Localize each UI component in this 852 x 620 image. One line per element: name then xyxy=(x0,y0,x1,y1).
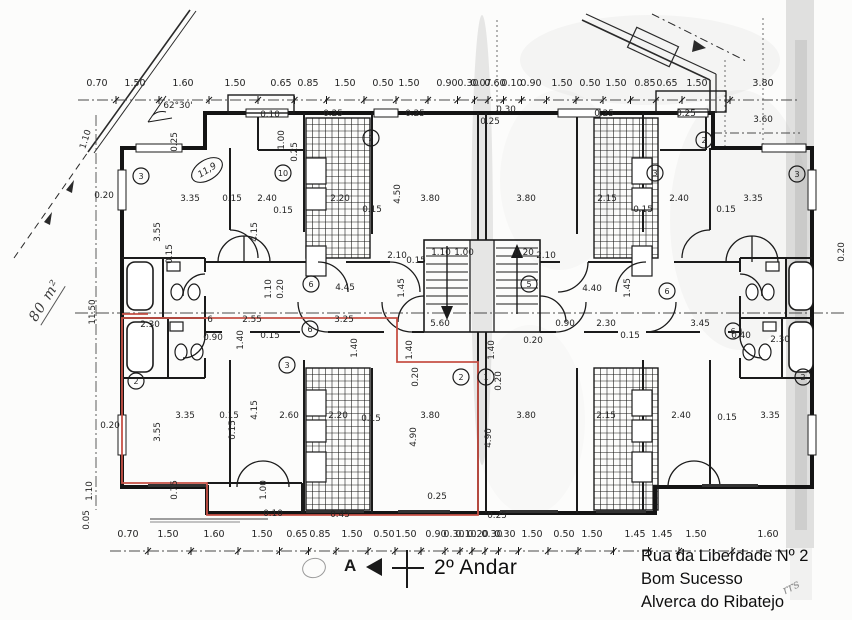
door-arc xyxy=(398,296,424,322)
dim-label: 2.40 xyxy=(257,194,277,204)
dim-label: 2.15 xyxy=(596,411,616,421)
dim-label: 3.45 xyxy=(690,319,710,329)
dim-label: 3.35 xyxy=(180,194,200,204)
dim-label: 0.20 xyxy=(523,336,543,346)
dim-label: 1.45 xyxy=(397,278,407,298)
floorplan-canvas: 0.701.501.601.500.650.851.500.501.500.90… xyxy=(0,0,852,620)
dim-label: 0.15 xyxy=(633,205,653,215)
dim-label: 3.80 xyxy=(516,411,536,421)
dim-label: 0.75 xyxy=(170,480,180,500)
dim-chain-label: 0.50 xyxy=(373,529,394,540)
sink-icon xyxy=(632,452,652,482)
dim-label: 3.55 xyxy=(153,422,163,442)
dim-label: 2.30 xyxy=(140,320,160,330)
window-sill xyxy=(702,484,758,487)
stove-icon xyxy=(306,420,326,442)
dim-chain-label: 0.50 xyxy=(553,529,574,540)
dim-chain-label: 0.90 xyxy=(436,78,457,89)
dim-label: 0.15 xyxy=(620,331,640,341)
bathtub-icon xyxy=(789,322,813,372)
counter-icon xyxy=(306,158,326,184)
window-icon xyxy=(118,170,126,210)
dim-label: 4.90 xyxy=(484,428,494,448)
dim-label: 0.20 xyxy=(276,279,286,299)
room-number: 6 xyxy=(307,325,312,334)
counter-icon xyxy=(306,390,326,416)
bidet-icon xyxy=(191,344,203,360)
dim-label: 1.40 xyxy=(405,340,415,360)
dim-label: 6 xyxy=(207,315,213,325)
dim-chain-label: 0.65 xyxy=(270,78,291,89)
dim-chain-label: 1.50 xyxy=(581,529,602,540)
sink-icon xyxy=(170,322,183,331)
section-cut-marker: A xyxy=(300,552,450,588)
dim-label: 3.55 xyxy=(153,222,163,242)
dim-chain-label: 1.50 xyxy=(224,78,245,89)
dim-chain-label: 1.50 xyxy=(686,78,707,89)
dim-label: 4.40 xyxy=(582,284,602,294)
dim-label: 2.55 xyxy=(242,315,262,325)
section-line xyxy=(392,567,424,569)
dim-label: 0.10 xyxy=(263,509,283,519)
address-block: Rua da Liberdade Nº 2 Bom Sucesso Alverc… xyxy=(641,545,808,614)
window-icon xyxy=(762,144,806,152)
dim-label: 0.20 xyxy=(837,242,847,262)
address-line-town: Alverca do Ribatejo xyxy=(641,591,808,614)
dim-label: 2.10 xyxy=(387,251,407,261)
dim-label: 0.25 xyxy=(323,109,343,119)
dim-chain-label: 0.65 xyxy=(656,78,677,89)
dim-label: 0.15 xyxy=(717,413,737,423)
dim-label: 0.30 xyxy=(496,105,516,115)
dim-chain-label: 0.30 xyxy=(494,529,515,540)
dim-chain-label: 1.60 xyxy=(757,529,778,540)
dim-label: 0.25 xyxy=(594,109,614,119)
dim-label: 4.15 xyxy=(250,222,260,242)
dim-label: 0.15 xyxy=(362,205,382,215)
dim-label: 3.25 xyxy=(334,315,354,325)
dim-label: 1.40 xyxy=(487,340,497,360)
dim-label: 2.10 xyxy=(536,251,556,261)
dim-label: 4.45 xyxy=(335,283,355,293)
dim-label: 0.15 xyxy=(165,244,175,264)
sink-icon xyxy=(763,322,776,331)
area-oval-label: 11,9 xyxy=(187,153,226,188)
dim-chain-label: 0.65 xyxy=(286,529,307,540)
dim-label: 0.15 xyxy=(716,205,736,215)
dim-label: 3.80 xyxy=(420,194,440,204)
stove-icon xyxy=(632,420,652,442)
floorplan-scan-page: 0.701.501.601.500.650.851.500.501.500.90… xyxy=(0,0,852,620)
dim-label: 2.20 xyxy=(330,194,350,204)
dim-label: 2.20 xyxy=(328,411,348,421)
dim-label: 0.15 xyxy=(260,331,280,341)
dim-label: 0.25 xyxy=(480,117,500,127)
double-door-arc xyxy=(668,461,694,487)
dim-label: 62°30' xyxy=(163,101,192,111)
dim-label: 1.00 xyxy=(454,248,474,258)
dim-label: 0.90 xyxy=(555,319,575,329)
room-number: 1 xyxy=(483,373,488,382)
dim-label: 2.40 xyxy=(669,194,689,204)
dim-label: 2.60 xyxy=(279,411,299,421)
dim-chain-label: 1.45 xyxy=(651,529,672,540)
dim-label: 0.25 xyxy=(405,109,425,119)
bidet-icon xyxy=(743,344,755,360)
dim-label: 11.50 xyxy=(88,299,98,325)
room-number: 3 xyxy=(652,169,657,178)
double-door-arc xyxy=(694,461,720,487)
room-number: 10 xyxy=(278,169,288,178)
dim-chain-label: 1.50 xyxy=(334,78,355,89)
dim-label: 3.35 xyxy=(743,194,763,204)
dim-chain-label: 1.50 xyxy=(605,78,626,89)
dim-label: 3.35 xyxy=(175,411,195,421)
dim-label: 5.60 xyxy=(430,319,450,329)
dim-chain-label: 3.80 xyxy=(752,78,773,89)
dim-label: 0.15 xyxy=(406,256,426,266)
sink-icon xyxy=(766,262,779,271)
dim-chain-label: 0.70 xyxy=(117,529,138,540)
toilet-icon xyxy=(762,284,774,300)
window-icon xyxy=(808,170,816,210)
dim-label: 0.20 xyxy=(94,191,114,201)
dim-chain-label: 1.50 xyxy=(395,529,416,540)
dim-chain-label: 1.50 xyxy=(251,529,272,540)
dim-label: 3.60 xyxy=(753,115,773,125)
room-number: 3 xyxy=(794,170,799,179)
dim-label: 0.15 xyxy=(219,411,239,421)
dim-label: 3.80 xyxy=(516,194,536,204)
dim-chain-label: 1.60 xyxy=(172,78,193,89)
dim-label: 0.15 xyxy=(273,206,293,216)
dim-label: 1.10 xyxy=(431,248,451,258)
dim-label: 0.10 xyxy=(260,110,280,120)
dim-chain-label: 0.50 xyxy=(579,78,600,89)
double-door-arc xyxy=(218,236,244,262)
dim-label: 2.15 xyxy=(597,194,617,204)
dim-label: 0.25 xyxy=(487,511,507,521)
bathtub-icon xyxy=(789,262,813,310)
dim-label: 1.10 xyxy=(85,481,95,501)
room-number: 3 xyxy=(284,361,289,370)
dim-label: 0.20 xyxy=(411,367,421,387)
room-number: 6 xyxy=(308,280,313,289)
dim-chain-label: 1.50 xyxy=(124,78,145,89)
toilet-icon xyxy=(171,284,183,300)
dim-label: 0.20 xyxy=(514,248,534,258)
address-line-street: Rua da Liberdade Nº 2 xyxy=(641,545,808,568)
sink-icon xyxy=(632,246,652,276)
dim-chain-label: 1.60 xyxy=(203,529,224,540)
dim-chain-label: 1.50 xyxy=(341,529,362,540)
room-number: 6 xyxy=(664,287,669,296)
dim-chain-label: 0.70 xyxy=(86,78,107,89)
dim-label: 0.05 xyxy=(82,510,92,530)
section-line xyxy=(406,550,408,588)
door-arc xyxy=(646,302,676,332)
dim-chain-label: 1.50 xyxy=(521,529,542,540)
dim-chain-label: 1.50 xyxy=(157,529,178,540)
dim-label: 0.15 xyxy=(361,414,381,424)
dim-label: 0.90 xyxy=(203,333,223,343)
room-number: 3 xyxy=(138,172,143,181)
bidet-icon xyxy=(746,284,758,300)
dim-chain-label: 0.50 xyxy=(372,78,393,89)
room-number: 5 xyxy=(526,280,531,289)
dim-label: 1.40 xyxy=(236,330,246,350)
dim-chain-label: 0.10 xyxy=(501,78,522,89)
dim-label: 0.45 xyxy=(330,510,350,520)
dim-label: 2.30 xyxy=(770,335,790,345)
dim-label: 0.25 xyxy=(290,142,300,162)
counter-icon xyxy=(632,158,652,184)
dim-label: 0.15 xyxy=(222,194,242,204)
dim-chain-label: 0.85 xyxy=(297,78,318,89)
window-icon xyxy=(374,109,398,117)
dim-label: 2.40 xyxy=(671,411,691,421)
dim-label: 0.20 xyxy=(100,421,120,431)
sink-icon xyxy=(306,246,326,276)
dim-chain-label: 1.50 xyxy=(551,78,572,89)
dim-label: 0.20 xyxy=(494,371,504,391)
dim-chain-label: 1.45 xyxy=(624,529,645,540)
dim-label: 0.25 xyxy=(170,132,180,152)
room-number: 2 xyxy=(458,373,463,382)
room-number: 2 xyxy=(368,134,373,143)
dim-label: 4.50 xyxy=(393,184,403,204)
area-oval-text: 11,9 xyxy=(196,161,219,180)
dim-label: 3.35 xyxy=(760,411,780,421)
dim-label: 0.25 xyxy=(427,492,447,502)
room-number: 2 xyxy=(800,373,805,382)
dim-label: 1.00 xyxy=(277,130,287,150)
dim-chain-label: 1.50 xyxy=(398,78,419,89)
sink-icon xyxy=(306,452,326,482)
section-arrow-icon xyxy=(366,558,382,576)
section-letter: A xyxy=(344,556,356,576)
dim-chain-label: 0.85 xyxy=(309,529,330,540)
dim-label: 1.40 xyxy=(350,338,360,358)
room-number: 2 xyxy=(133,377,138,386)
dim-label: 2.30 xyxy=(596,319,616,329)
bathtub-icon xyxy=(127,262,153,310)
counter-icon xyxy=(632,390,652,416)
window-sill xyxy=(500,510,558,513)
dim-label: 1.45 xyxy=(623,278,633,298)
dim-label: 1.10 xyxy=(264,279,274,299)
dim-label: 3.80 xyxy=(420,411,440,421)
bidet-icon xyxy=(188,284,200,300)
window-icon xyxy=(808,415,816,455)
window-sill xyxy=(398,510,450,513)
dim-label: 4.90 xyxy=(409,427,419,447)
dim-label: 4.15 xyxy=(250,400,260,420)
dim-label: 0.15 xyxy=(228,420,238,440)
room-number: 2 xyxy=(701,136,706,145)
dim-label: 0.25 xyxy=(676,109,696,119)
stove-icon xyxy=(306,188,326,210)
dim-chain-label: 1.50 xyxy=(685,529,706,540)
window-sill xyxy=(596,510,646,513)
sketch-circle-icon xyxy=(300,555,328,581)
room-number: 6 xyxy=(730,327,735,336)
dim-label: 1.00 xyxy=(259,480,269,500)
dim-chain-label: 0.90 xyxy=(520,78,541,89)
dim-chain-label: 0.85 xyxy=(634,78,655,89)
